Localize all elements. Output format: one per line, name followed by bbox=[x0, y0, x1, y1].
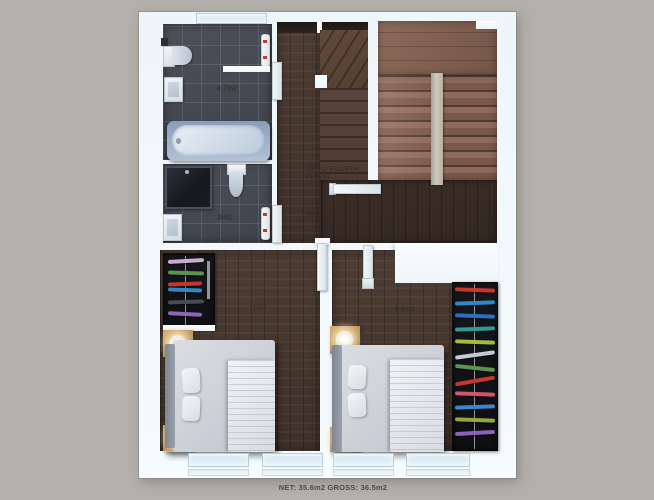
room-label-bath-lower: 3m2 bbox=[218, 215, 232, 222]
clothes-item bbox=[168, 299, 204, 304]
headboard bbox=[165, 344, 175, 448]
sink-upper bbox=[164, 77, 183, 102]
clothes-item bbox=[168, 258, 204, 264]
wardrobe-door-handle bbox=[207, 261, 210, 299]
headboard bbox=[332, 345, 342, 452]
toilet-bowl-upper bbox=[172, 46, 192, 65]
window-pane bbox=[406, 453, 470, 467]
stairs-note-line1: UP TO FOURTH bbox=[306, 166, 359, 174]
staircase-winder-turn bbox=[320, 30, 368, 88]
sink-basin-lower bbox=[167, 219, 178, 236]
radiator-valve bbox=[263, 40, 267, 43]
staircase-handrail bbox=[431, 73, 443, 185]
toilet-bowl-lower bbox=[229, 172, 243, 197]
room-label-bedroom-left: 11m2 bbox=[249, 305, 267, 312]
door-leaf-under-stairs bbox=[333, 184, 381, 194]
towel-radiator-upper bbox=[261, 34, 270, 67]
window-sill bbox=[188, 469, 249, 476]
stairwell-shadow-left bbox=[277, 22, 317, 33]
clothes-item bbox=[455, 404, 495, 409]
pillow bbox=[181, 367, 201, 393]
sink-lower bbox=[163, 214, 182, 241]
clothes-item bbox=[168, 270, 204, 275]
door-leaf-bathroom-lower bbox=[272, 205, 282, 243]
shower-head bbox=[185, 170, 189, 174]
clothes-item bbox=[455, 287, 495, 292]
clothes-item bbox=[455, 364, 495, 372]
floor-plan-stage: 4.7m2 3m2 7.3m2 11m2 9.6m2 UP TO FOURTH … bbox=[0, 0, 654, 500]
blanket bbox=[228, 360, 275, 452]
cistern-box bbox=[161, 38, 168, 46]
clothes-item bbox=[455, 391, 495, 396]
clothes-item bbox=[455, 417, 495, 422]
shower-enclosure bbox=[165, 166, 212, 209]
clothes-item bbox=[455, 326, 495, 331]
pillow bbox=[347, 364, 367, 389]
floor-plan-sheet: 4.7m2 3m2 7.3m2 11m2 9.6m2 UP TO FOURTH … bbox=[139, 12, 516, 478]
pillow bbox=[181, 396, 200, 422]
bathroom-partition-wall bbox=[223, 66, 270, 72]
window-pane bbox=[262, 453, 323, 467]
room-label-bath-upper: 4.7m2 bbox=[217, 86, 237, 93]
hall-corridor-floor bbox=[277, 24, 321, 243]
bathtub bbox=[167, 121, 270, 161]
window-sill bbox=[406, 469, 470, 476]
radiator-valve bbox=[263, 56, 267, 59]
stairs-note-line2: FLOOR bbox=[306, 174, 359, 182]
door-hinge-bedroom-right bbox=[362, 278, 374, 289]
radiator-valve bbox=[263, 229, 267, 232]
towel-radiator-lower bbox=[261, 207, 270, 240]
hall-wall-post bbox=[315, 75, 327, 88]
pillow bbox=[347, 393, 366, 418]
clothes-item bbox=[455, 376, 495, 387]
bathtub-faucet bbox=[176, 138, 181, 144]
clothes-item bbox=[455, 313, 495, 318]
window-sill bbox=[262, 469, 323, 476]
radiator-valve bbox=[263, 213, 267, 216]
clothes-item bbox=[168, 287, 202, 292]
wardrobe-left bbox=[163, 253, 215, 330]
room-label-hall: 7.3m2 bbox=[300, 212, 320, 219]
clothes-item bbox=[455, 339, 495, 344]
bathtub-basin bbox=[172, 125, 265, 156]
area-summary: NET: 35.6m2 GROSS: 36.5m2 bbox=[193, 483, 473, 492]
stairs-direction-note: UP TO FOURTH FLOOR bbox=[306, 166, 359, 182]
sink-basin-upper bbox=[168, 82, 179, 97]
window-pane bbox=[188, 453, 249, 467]
window-pane bbox=[333, 453, 394, 467]
clothes-item bbox=[455, 430, 495, 436]
staircase-top-notch bbox=[476, 21, 497, 29]
bed-right bbox=[332, 345, 444, 452]
clothes-item bbox=[168, 281, 202, 286]
room-label-bedroom-right: 9.6m2 bbox=[395, 307, 415, 314]
clothes-item bbox=[168, 311, 202, 317]
wardrobe-right bbox=[452, 282, 498, 451]
bed-left bbox=[165, 340, 275, 452]
window-sill bbox=[333, 469, 394, 476]
bedroom-right-upper-wall bbox=[395, 243, 498, 283]
staircase-main-landing bbox=[378, 21, 497, 75]
door-leaf-bathroom-upper bbox=[272, 62, 282, 100]
window-pane-top bbox=[196, 13, 267, 24]
clothes-item bbox=[455, 300, 495, 305]
door-leaf-bedroom-left bbox=[317, 243, 327, 291]
clothes-item bbox=[455, 350, 495, 360]
blanket bbox=[390, 359, 444, 452]
